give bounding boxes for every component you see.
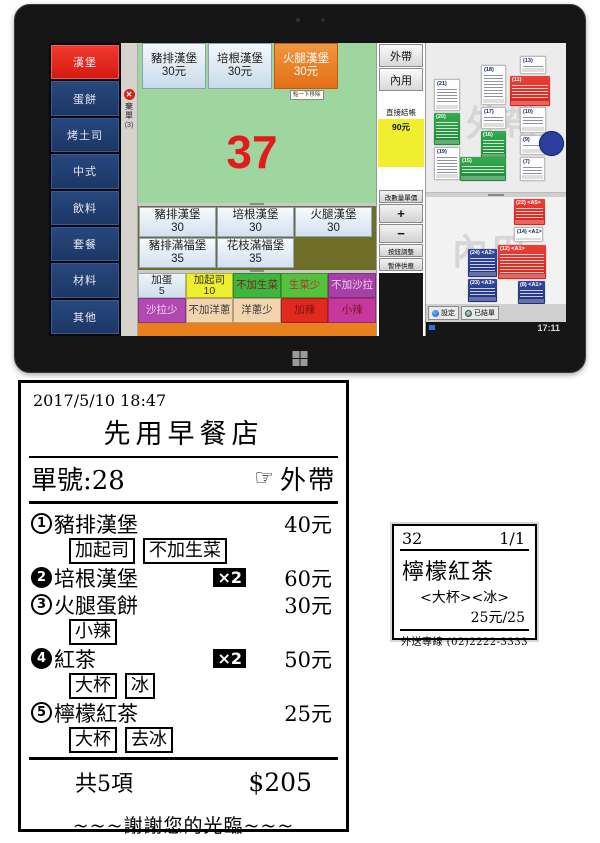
modifier-tag: 冰 [125, 673, 155, 699]
item-name: 檸檬紅茶 [54, 698, 138, 728]
windows-logo-icon[interactable] [293, 351, 308, 366]
modifier-tag: 小辣 [69, 619, 117, 645]
order-card[interactable]: (14) <A1> [514, 227, 543, 242]
sidebar-item-combo[interactable]: 套餐 [51, 227, 119, 261]
modifier-tag: 大杯 [69, 673, 117, 699]
section-divider[interactable] [138, 270, 376, 273]
discard-label: 棄單 [123, 103, 135, 120]
plus-button[interactable]: + [379, 204, 423, 223]
pause-supply-button[interactable]: 暫停供應 [379, 258, 423, 271]
receipt-item: 2 培根漢堡 ×2 60元 [31, 564, 336, 591]
order-card[interactable]: (10) [520, 107, 546, 133]
store-name: 先用早餐店 [29, 412, 338, 451]
selected-items-row: 豬排漢堡 30元 培根漢堡 30元 火腿漢堡 30元 [138, 43, 376, 89]
checkout-amount-button[interactable]: 90元 [378, 119, 424, 167]
bottom-orange-strip [138, 323, 376, 336]
order-number-row: 單號:28 ☞ 外帶 [31, 460, 336, 497]
topping-no-lettuce[interactable]: 不加生菜 [233, 273, 281, 298]
item-modifiers: 大杯 冰 [69, 672, 338, 699]
toppings-row-1: 加蛋 5 加起司 10 不加生菜 生菜少 不加沙拉 [138, 273, 376, 298]
section-divider[interactable] [138, 203, 376, 206]
total-count: 共5項 [75, 766, 133, 798]
pointing-hand-icon: ☞ [254, 466, 274, 491]
sidebar-item-drinks[interactable]: 飲料 [51, 191, 119, 225]
toppings-panel: 加蛋 5 加起司 10 不加生菜 生菜少 不加沙拉 [138, 273, 376, 323]
divider-line [29, 456, 338, 458]
divider-line [29, 501, 338, 504]
bottom-taskbar: 設定 已結單 [426, 304, 566, 322]
item-price: 60元 [260, 563, 336, 593]
qty-price-button[interactable]: 改數量單價 [379, 190, 423, 203]
drink-label-sticker: 32 1/1 檸檬紅茶 <大杯><冰> 25元/25 外送專線 (02)2222… [392, 524, 537, 640]
menu-item-bacon-burger[interactable]: 培根漢堡 30 [217, 207, 294, 237]
order-card[interactable]: (12) <A1> [498, 245, 546, 279]
item-price: 40元 [260, 509, 336, 539]
order-card[interactable]: (23) <A3> [468, 279, 497, 302]
delivery-hotline: 外送專線 (02)2222-3333 [400, 629, 529, 648]
item-price: 50元 [260, 644, 336, 674]
remove-tooltip: 點一下移除 [290, 90, 324, 100]
topping-no-onion[interactable]: 不加洋蔥 [186, 298, 234, 323]
item-price: 25元 [260, 698, 336, 728]
item-number: 2 [31, 567, 52, 588]
item-name: 紅茶 [54, 644, 96, 674]
order-card[interactable]: (13) [520, 56, 546, 74]
topping-add-egg[interactable]: 加蛋 5 [138, 273, 186, 298]
total-row: 共5項 $205 [31, 766, 336, 798]
sticker-modifiers: <大杯><冰> [400, 587, 529, 607]
order-number-label: 單號:28 [31, 460, 125, 497]
checkout-label: 直接結帳 [377, 107, 425, 118]
receipt-item: 1 豬排漢堡 40元 [31, 510, 336, 537]
toppings-row-2: 沙拉少 不加洋蔥 洋蔥少 加辣 小辣 [138, 298, 376, 323]
sticker-price: 25元/25 [400, 607, 525, 627]
sidebar-item-burger[interactable]: 漢堡 [51, 45, 119, 79]
pos-screen: 漢堡 蛋餅 烤土司 中式 飲料 套餐 材料 其他 ✕ 棄單 (3) 豬排漢堡 3… [49, 43, 566, 336]
circle-x-icon: ✕ [124, 89, 135, 100]
action-column: 外帶 內用 直接結帳 90元 改數量單價 + − 按鈕調整 暫停供應 [376, 43, 426, 336]
sidebar-item-eggcake[interactable]: 蛋餅 [51, 81, 119, 115]
order-number: 37 [138, 101, 366, 203]
quantity-badge: ×2 [213, 568, 246, 587]
receipt-item: 5 檸檬紅茶 25元 [31, 699, 336, 726]
item-modifiers: 加起司 不加生菜 [69, 537, 338, 564]
item-modifiers: 小辣 [69, 618, 338, 645]
order-card[interactable]: (21) [434, 79, 460, 111]
thanks-message: ~~~謝謝您的光臨~~~ [29, 811, 338, 838]
order-card[interactable]: (17) [481, 107, 506, 129]
item-price: 30元 [260, 590, 336, 620]
order-card[interactable]: (20) [434, 113, 460, 145]
sidebar-item-chinese[interactable]: 中式 [51, 154, 119, 188]
order-card[interactable]: (7) [520, 157, 545, 181]
modifier-tag: 去冰 [125, 727, 173, 753]
menu-item-squid-muffin[interactable]: 花枝滿福堡 35 [217, 238, 294, 268]
sidebar-item-toast[interactable]: 烤土司 [51, 118, 119, 152]
order-card[interactable]: (24) <A2> [468, 249, 497, 277]
menu-item-pork-muffin[interactable]: 豬排滿福堡 35 [139, 238, 216, 268]
item-modifiers: 大杯 去冰 [69, 726, 338, 753]
call-order-badge[interactable] [539, 131, 564, 156]
dinein-button[interactable]: 內用 [379, 68, 423, 91]
menu-buttons-panel: 豬排漢堡 30 培根漢堡 30 火腿漢堡 30 豬排滿福堡 35 花枝滿福堡 [138, 206, 376, 270]
topping-less-lettuce[interactable]: 生菜少 [281, 273, 329, 298]
current-order-panel: 豬排漢堡 30元 培根漢堡 30元 火腿漢堡 30元 點一下移除 37 [138, 43, 376, 203]
order-card[interactable]: (22) <A5> [514, 199, 545, 225]
modifier-tag: 加起司 [69, 538, 135, 564]
selected-item-bacon-burger[interactable]: 培根漢堡 30元 [208, 43, 272, 89]
order-type: 外帶 [280, 460, 336, 497]
order-card[interactable]: (19) [434, 147, 460, 180]
closed-orders-button[interactable]: 已結單 [461, 306, 499, 320]
menu-item-ham-burger[interactable]: 火腿漢堡 30 [295, 207, 372, 237]
total-amount: $205 [248, 768, 312, 797]
clock-bar: 17:11 [426, 322, 566, 336]
divider-line [29, 757, 338, 760]
sticker-page: 1/1 [499, 529, 525, 548]
sidebar-item-other[interactable]: 其他 [51, 300, 119, 334]
receipt-datetime: 2017/5/10 18:47 [33, 391, 338, 410]
takeout-button[interactable]: 外帶 [379, 44, 423, 67]
item-name: 豬排漢堡 [54, 509, 138, 539]
topping-no-salad[interactable]: 不加沙拉 [328, 273, 376, 298]
topping-mild-spicy[interactable]: 小辣 [328, 298, 376, 323]
modifier-tag: 大杯 [69, 727, 117, 753]
receipt-item: 4 紅茶 ×2 50元 [31, 645, 336, 672]
dinein-orders-area: 內用 (22) <A5> (14) <A1> (12) <A1> (24) <A… [426, 197, 566, 304]
order-card[interactable]: (18) [481, 65, 506, 105]
main-order-area: 豬排漢堡 30元 培根漢堡 30元 火腿漢堡 30元 點一下移除 37 [138, 43, 376, 336]
modifier-tag: 不加生菜 [143, 538, 227, 564]
camera-dot [296, 18, 300, 22]
category-sidebar: 漢堡 蛋餅 烤土司 中式 飲料 套餐 材料 其他 [49, 43, 121, 336]
settings-button[interactable]: 設定 [428, 306, 459, 320]
clock: 17:11 [537, 323, 560, 333]
selected-item-pork-burger[interactable]: 豬排漢堡 30元 [142, 43, 206, 89]
sticker-item-name: 檸檬紅茶 [402, 554, 529, 586]
blank-display [379, 273, 423, 336]
item-number: 4 [31, 648, 52, 669]
item-number: 1 [31, 513, 52, 534]
quantity-badge: ×2 [213, 649, 246, 668]
topping-add-cheese[interactable]: 加起司 10 [186, 273, 234, 298]
selected-item-ham-burger[interactable]: 火腿漢堡 30元 [274, 43, 338, 89]
globe-icon [465, 310, 472, 317]
topping-less-salad[interactable]: 沙拉少 [138, 298, 186, 323]
gear-icon [432, 310, 439, 317]
item-number: 5 [31, 702, 52, 723]
receipt-item: 3 火腿蛋餅 30元 [31, 591, 336, 618]
printed-receipt: 2017/5/10 18:47 先用早餐店 單號:28 ☞ 外帶 1 豬排漢堡 … [18, 380, 349, 832]
order-card[interactable]: (11) [510, 76, 550, 106]
sensor-dot [321, 18, 325, 22]
discard-count: (3) [125, 122, 134, 129]
order-card[interactable]: (15) [460, 157, 506, 181]
tablet-device: 漢堡 蛋餅 烤土司 中式 飲料 套餐 材料 其他 ✕ 棄單 (3) 豬排漢堡 3… [14, 4, 586, 373]
topping-less-onion[interactable]: 洋蔥少 [233, 298, 281, 323]
sticker-number: 32 [402, 529, 422, 548]
sidebar-item-material[interactable]: 材料 [51, 263, 119, 297]
discard-strip[interactable]: ✕ 棄單 (3) [121, 43, 138, 336]
topping-add-spicy[interactable]: 加辣 [281, 298, 329, 323]
item-name: 培根漢堡 [54, 563, 138, 593]
sticker-header: 32 1/1 [400, 529, 529, 551]
menu-item-pork-burger[interactable]: 豬排漢堡 30 [139, 207, 216, 237]
takeout-orders-area: 外帶 (21) (18) (13) (11) (20) (17) (10) (1… [426, 43, 566, 193]
taskbar-indicator [429, 325, 435, 330]
button-adjust-button[interactable]: 按鈕調整 [379, 244, 423, 257]
item-number: 3 [31, 594, 52, 615]
minus-button[interactable]: − [379, 224, 423, 243]
item-name: 火腿蛋餅 [54, 590, 138, 620]
orders-panel: 外帶 (21) (18) (13) (11) (20) (17) (10) (1… [426, 43, 566, 336]
order-card[interactable]: (8) <A1> [518, 281, 545, 304]
order-card[interactable]: (16) [481, 131, 506, 159]
